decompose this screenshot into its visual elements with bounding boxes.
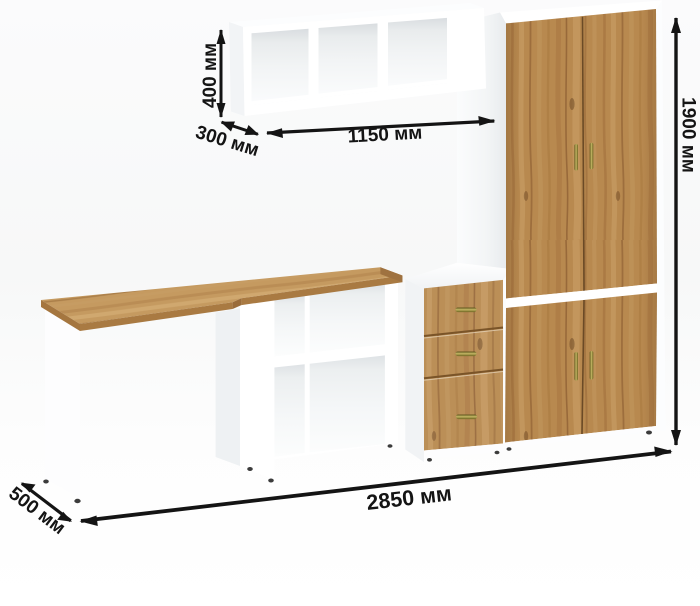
svg-text:1900 мм: 1900 мм: [677, 97, 698, 173]
svg-text:1150 мм: 1150 мм: [347, 123, 423, 148]
svg-text:400 мм: 400 мм: [200, 43, 221, 108]
